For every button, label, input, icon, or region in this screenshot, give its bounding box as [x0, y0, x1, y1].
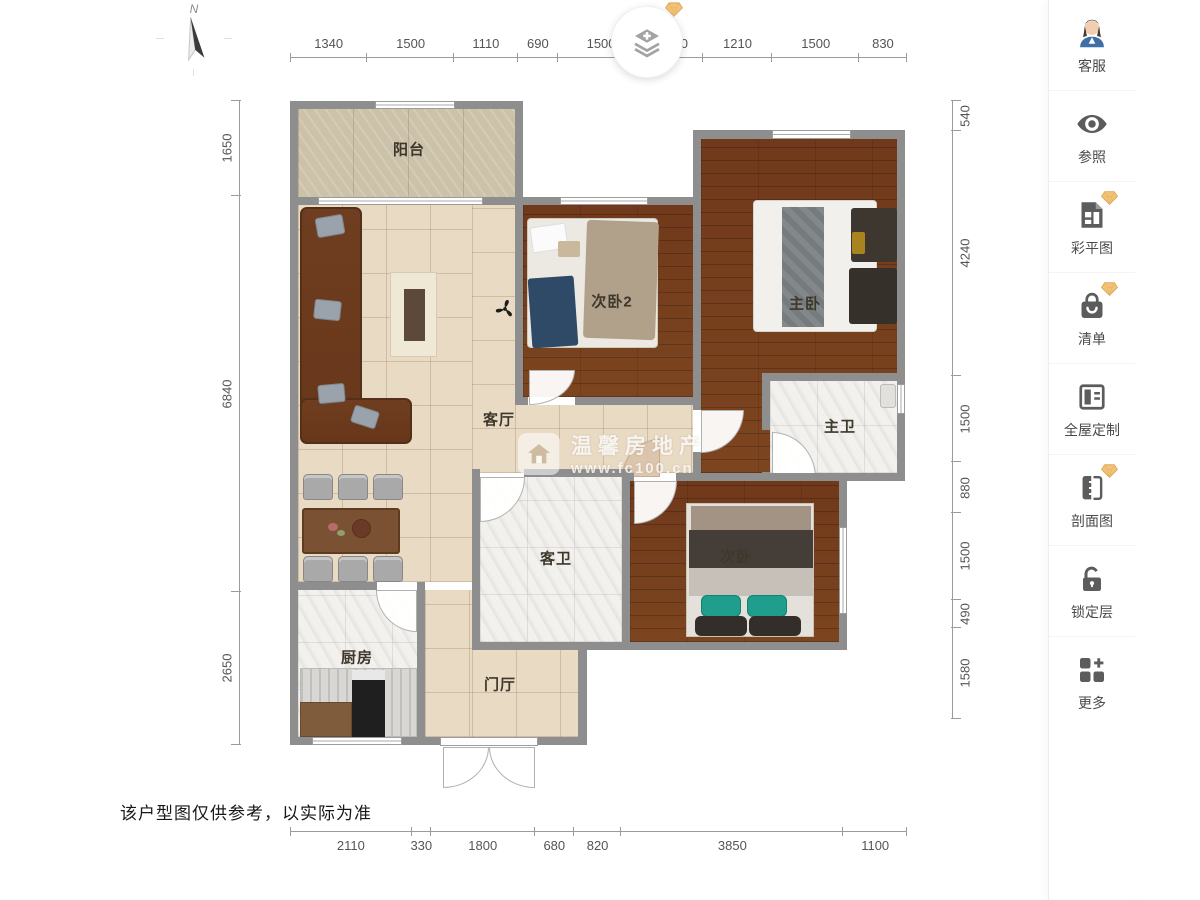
dining-chair — [373, 474, 403, 500]
dimension-col-right: 540 4240 1500 880 1500 490 1580 — [952, 100, 978, 719]
sidebar-item-color-plan[interactable]: 彩平图 — [1049, 182, 1135, 273]
dining-flowers — [328, 523, 338, 531]
dimension-row-bottom: 2110 330 1800 680 820 3850 1100 — [290, 831, 907, 857]
dim-segment: 1580 — [952, 628, 978, 719]
dim-segment: 6840 — [214, 196, 240, 592]
unlocked-padlock-icon — [1074, 561, 1110, 597]
dim-segment: 830 — [859, 32, 907, 58]
entrance-door-right — [489, 747, 535, 788]
premium-gem-icon — [1100, 190, 1119, 206]
compass-arrow-icon — [178, 14, 209, 69]
sidebar-item-label: 清单 — [1078, 329, 1106, 349]
dim-segment: 1500 — [952, 376, 978, 463]
sidebar-item-section-view[interactable]: 剖面图 — [1049, 455, 1135, 546]
bed-pillow — [558, 241, 580, 257]
disclaimer-text: 该户型图仅供参考，以实际为准 — [120, 799, 372, 824]
sofa-pillow — [317, 383, 346, 404]
sidebar-item-label: 剖面图 — [1071, 511, 1113, 531]
sidebar-item-customer-service[interactable]: 客服 — [1049, 0, 1135, 91]
sidebar-item-label: 更多 — [1078, 693, 1106, 713]
dim-segment: 490 — [952, 600, 978, 628]
layers-icon — [629, 24, 665, 60]
dining-chair — [303, 474, 333, 500]
bathroom-sink — [880, 384, 896, 408]
compass: N — [156, 2, 232, 76]
room-label-guest-bath: 客卫 — [540, 548, 572, 569]
kitchen-appliance — [352, 670, 385, 737]
dim-segment: 690 — [518, 32, 558, 58]
dim-segment: 4240 — [952, 131, 978, 376]
dim-segment: 1500 — [772, 32, 859, 58]
room-label-bedroom: 次卧 — [720, 546, 752, 567]
window-balcony-door — [318, 197, 483, 205]
wall-segment — [417, 582, 425, 745]
dim-segment: 540 — [952, 100, 978, 131]
dim-segment: 2650 — [214, 592, 240, 745]
master-accent-cushion — [852, 232, 865, 254]
dim-segment: 1800 — [431, 831, 535, 857]
dim-segment: 3850 — [621, 831, 843, 857]
dining-chair — [338, 556, 368, 582]
compass-tick — [224, 38, 232, 39]
sidebar-item-more[interactable]: 更多 — [1049, 637, 1135, 727]
dim-segment: 1500 — [952, 513, 978, 600]
window — [312, 737, 402, 745]
dim-segment: 1100 — [843, 831, 906, 857]
window — [560, 197, 648, 205]
floor-hallway — [515, 405, 693, 473]
sidebar-item-reference[interactable]: 参照 — [1049, 91, 1135, 182]
wall-segment — [524, 469, 630, 477]
layers-button[interactable] — [611, 6, 683, 78]
dim-segment: 1340 — [290, 32, 367, 58]
sidebar-item-label: 全屋定制 — [1064, 420, 1120, 440]
window — [772, 130, 851, 139]
wall-segment — [472, 642, 847, 650]
room-label-master-bedroom: 主卧 — [789, 293, 821, 314]
wall-segment — [622, 473, 630, 650]
wall-segment — [578, 650, 587, 745]
dining-chair — [373, 556, 403, 582]
bed-sheet — [689, 568, 813, 596]
dim-segment: 1210 — [703, 32, 773, 58]
wall-segment — [472, 469, 480, 650]
entrance-sill — [440, 737, 538, 746]
dim-segment: 820 — [574, 831, 621, 857]
bed-pillow-teal — [747, 595, 787, 617]
wall-segment — [538, 737, 587, 745]
wall-segment — [515, 101, 523, 405]
room-label-foyer: 门厅 — [484, 674, 516, 695]
floorplan-canvas[interactable]: 1340 1500 1110 690 1500 1010 1210 1500 8… — [0, 0, 1200, 900]
sidebar-item-label: 参照 — [1078, 147, 1106, 167]
wall-segment — [762, 373, 770, 430]
wall-segment — [290, 582, 377, 590]
sidebar-item-custom-furniture[interactable]: 全屋定制 — [1049, 364, 1135, 455]
wall-segment — [693, 452, 701, 473]
dim-segment: 880 — [952, 462, 978, 513]
wall-segment — [762, 373, 905, 381]
premium-gem-icon — [1100, 281, 1119, 297]
eye-icon — [1074, 106, 1110, 142]
dining-table — [302, 508, 400, 554]
bed-pillow-teal — [701, 595, 741, 617]
wardrobe-icon — [1074, 379, 1110, 415]
dim-segment: 2110 — [290, 831, 412, 857]
premium-gem-icon — [664, 1, 684, 18]
room-label-living: 客厅 — [483, 409, 515, 430]
coffee-table-top — [404, 289, 425, 341]
room-label-kitchen: 厨房 — [341, 647, 373, 668]
more-grid-plus-icon — [1074, 652, 1110, 688]
dining-plate — [352, 519, 371, 538]
floor-living-edge — [472, 205, 515, 473]
dim-segment: 1500 — [367, 32, 454, 58]
bed-blanket-tan — [583, 220, 659, 340]
sidebar-item-list[interactable]: 清单 — [1049, 273, 1135, 364]
sidebar-item-label: 锁定层 — [1071, 602, 1113, 622]
bed-blanket-blue — [528, 275, 579, 348]
window — [897, 384, 905, 414]
dining-chair — [338, 474, 368, 500]
sofa-pillow — [313, 299, 342, 322]
window — [839, 527, 847, 614]
bed-pillow-dark — [749, 616, 801, 636]
door-swing-bedroom2 — [529, 370, 575, 405]
wall-segment — [515, 397, 528, 405]
floor-corridor — [425, 590, 472, 737]
bed-pillow-dark — [695, 616, 747, 636]
dim-segment: 1110 — [454, 32, 518, 58]
wall-segment — [897, 130, 905, 481]
room-label-bedroom2: 次卧2 — [591, 291, 632, 312]
room-label-master-bath: 主卫 — [824, 416, 856, 437]
compass-tick — [193, 69, 194, 76]
dim-segment: 680 — [535, 831, 574, 857]
master-nightstand — [849, 268, 897, 324]
customer-service-avatar-icon — [1073, 14, 1111, 52]
room-label-balcony: 阳台 — [393, 139, 425, 160]
dimension-col-left: 1650 6840 2650 — [214, 100, 240, 745]
sidebar-item-label: 客服 — [1078, 56, 1106, 76]
dim-segment: 330 — [412, 831, 431, 857]
dining-flowers — [337, 530, 345, 536]
dimension-row-top: 1340 1500 1110 690 1500 1010 1210 1500 8… — [290, 32, 907, 58]
compass-tick — [156, 38, 164, 39]
bed-bedroom — [686, 503, 814, 637]
entrance-door-left — [443, 747, 489, 788]
bed-headboard — [691, 506, 811, 532]
wall-segment — [575, 397, 701, 405]
sidebar-item-label: 彩平图 — [1071, 238, 1113, 258]
dim-segment: 1650 — [214, 100, 240, 196]
coffee-table — [390, 272, 437, 357]
kitchen-appliance-top — [352, 670, 385, 680]
wall-segment — [693, 130, 701, 410]
window — [375, 101, 455, 109]
tool-sidebar: 客服 参照 — [1048, 0, 1135, 900]
bed-bedroom2 — [527, 218, 658, 348]
premium-gem-icon — [1100, 463, 1119, 479]
kitchen-cabinet — [300, 702, 352, 737]
wall-segment — [676, 473, 905, 481]
dining-chair — [303, 556, 333, 582]
sidebar-item-lock-layer[interactable]: 锁定层 — [1049, 546, 1135, 637]
